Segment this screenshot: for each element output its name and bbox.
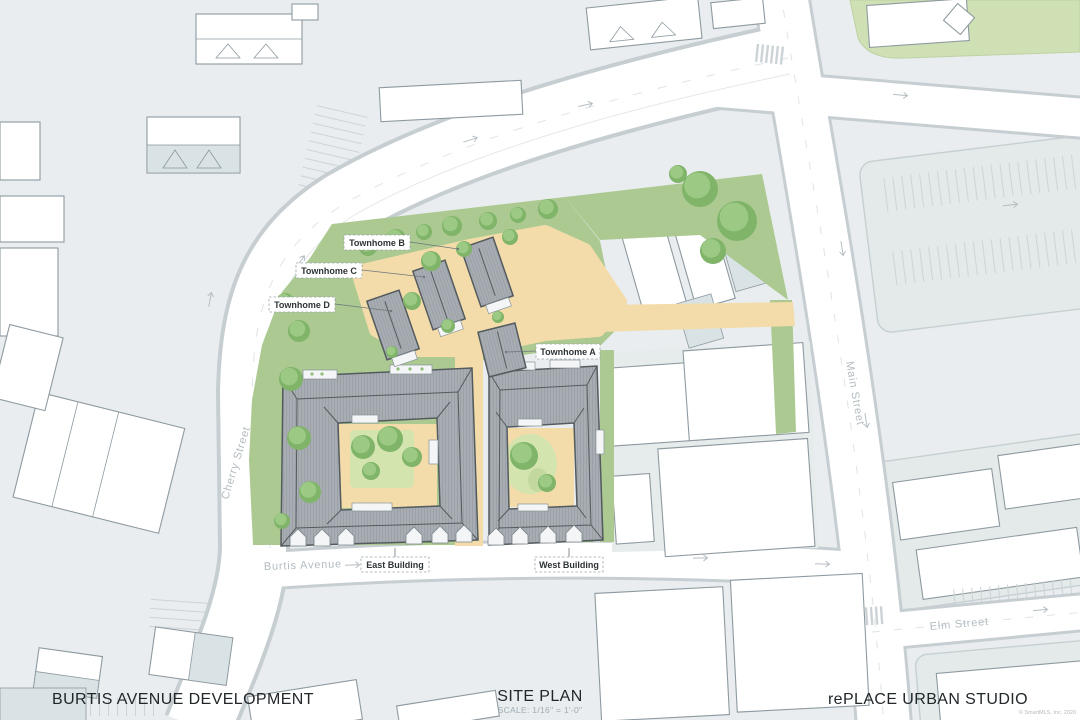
tree — [502, 229, 518, 245]
tree — [362, 462, 380, 480]
tree — [492, 311, 504, 323]
label-townhome-d: Townhome D — [274, 300, 330, 310]
tree — [479, 212, 497, 230]
label-townhome-a: Townhome A — [540, 347, 596, 357]
drawing-scale: SCALE: 1/16" = 1'-0" — [498, 705, 583, 715]
tree — [510, 442, 538, 470]
context-building — [711, 0, 765, 29]
tree — [402, 447, 422, 467]
context-building — [196, 14, 302, 64]
tree — [351, 435, 375, 459]
tree — [287, 426, 311, 450]
tree — [274, 513, 290, 529]
parking-lot-ne — [858, 135, 1080, 334]
tree — [682, 171, 718, 207]
firm-name: rePLACE URBAN STUDIO — [828, 691, 1028, 708]
label-west-building: West Building — [539, 560, 599, 570]
site-plan-sheet: Burtis Avenue Cherry Street Main Street … — [0, 0, 1080, 720]
context-building — [292, 4, 318, 20]
roof-bay — [429, 440, 438, 464]
context-building — [147, 117, 240, 173]
tree — [538, 474, 556, 492]
roof-bay — [518, 419, 542, 426]
context-building — [0, 196, 64, 242]
project-title: BURTIS AVENUE DEVELOPMENT — [52, 691, 314, 708]
tree — [700, 238, 726, 264]
roof-bay — [352, 415, 378, 423]
roof-bay — [303, 370, 337, 379]
label-townhome-c: Townhome C — [301, 266, 357, 276]
tree — [538, 199, 558, 219]
tree — [717, 201, 757, 241]
roof-bay — [550, 360, 580, 368]
tree — [510, 207, 526, 223]
tree — [416, 224, 432, 240]
roof-bay — [596, 430, 604, 454]
tree — [421, 251, 441, 271]
tree — [279, 367, 303, 391]
tree — [299, 481, 321, 503]
site-plan-drawing: Burtis Avenue Cherry Street Main Street … — [0, 0, 1080, 720]
roof-bay — [352, 503, 392, 511]
tree — [377, 426, 403, 452]
tree — [288, 320, 310, 342]
context-building — [379, 80, 523, 121]
drawing-title: SITE PLAN — [497, 688, 582, 705]
context-building — [0, 122, 40, 180]
tree — [386, 346, 398, 358]
context-building — [0, 248, 58, 336]
copyright-note: © SmartMLS, Inc. 2020 — [1019, 709, 1076, 716]
label-east-building: East Building — [366, 560, 424, 570]
tree — [403, 292, 421, 310]
roof-bay — [518, 504, 548, 511]
label-townhome-b: Townhome B — [349, 238, 405, 248]
context-building — [149, 627, 233, 685]
tree — [442, 216, 462, 236]
tree — [669, 165, 687, 183]
tree — [441, 319, 455, 333]
